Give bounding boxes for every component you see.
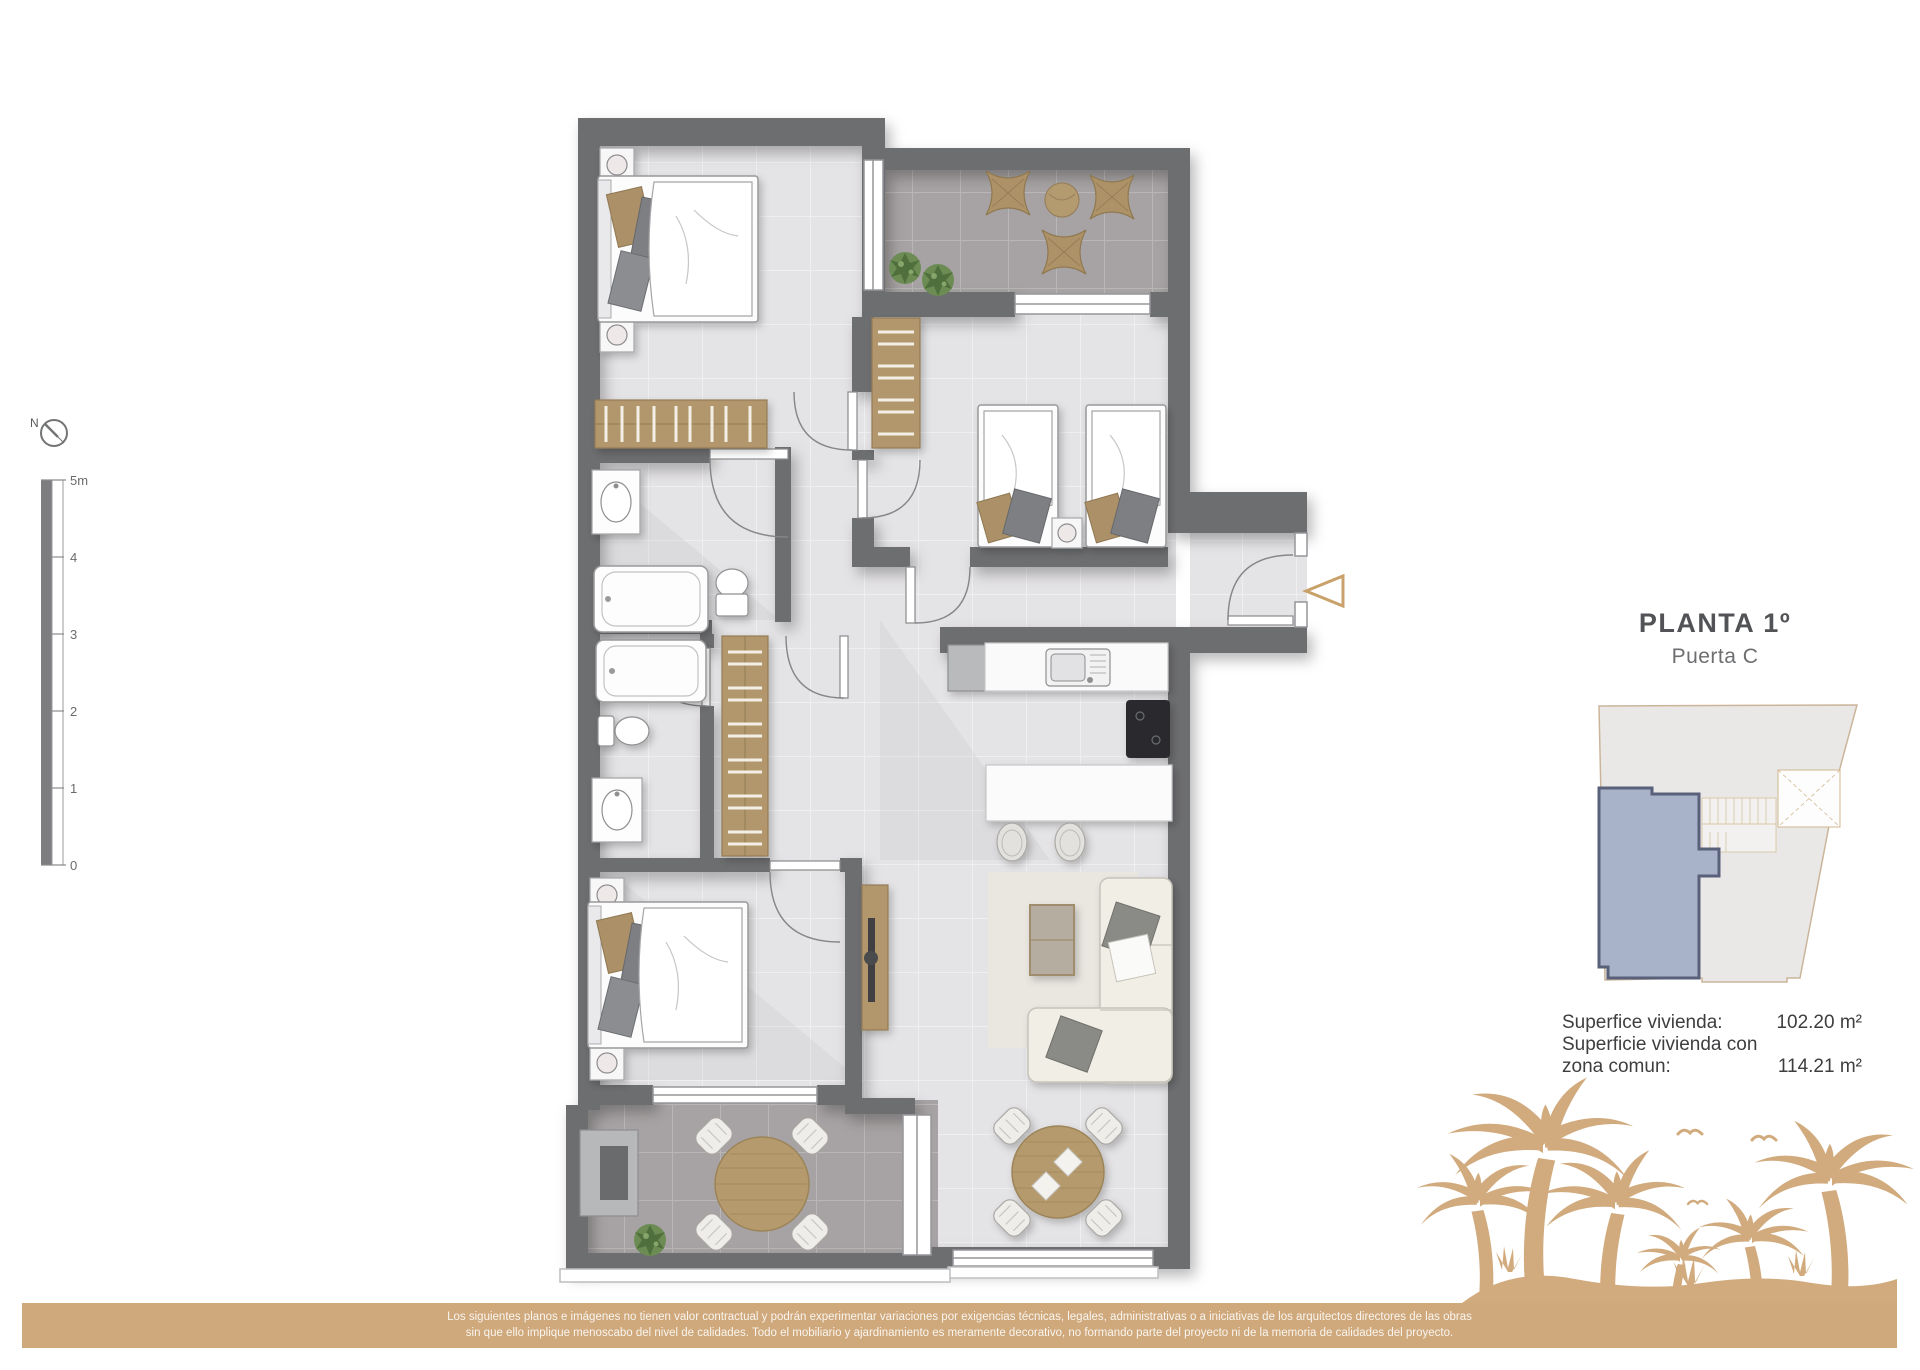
- bedroom-1: [595, 148, 767, 448]
- compass-label: N: [30, 416, 39, 430]
- scale-label-1: 1: [70, 781, 77, 796]
- bedroom2-bed-1: [977, 405, 1058, 547]
- title-block: PLANTA 1º Puerta C: [1555, 608, 1875, 669]
- key-plan-stairs: [1702, 798, 1776, 852]
- compass-icon: N: [30, 416, 67, 446]
- scale-bar: 5m 4 3 2 1 0: [41, 473, 88, 873]
- surface-info: Superfice vivienda: 102.20 m² Superficie…: [1562, 1012, 1862, 1078]
- plan-title: PLANTA 1º: [1555, 608, 1875, 639]
- corridor-wardrobe: [722, 636, 768, 856]
- bird-icon: [1752, 1136, 1776, 1140]
- bedroom3-bed: [588, 902, 748, 1048]
- surface-label-3: zona comun:: [1562, 1056, 1671, 1078]
- disclaimer-line-1: Los siguientes planos e imágenes no tien…: [22, 1309, 1897, 1325]
- scale-label-0: 0: [70, 858, 77, 873]
- bird-icon: [1678, 1130, 1702, 1134]
- scale-label-5m: 5m: [70, 473, 88, 488]
- surface-value-3: 114.21 m²: [1778, 1056, 1862, 1078]
- surface-label-1: Superfice vivienda:: [1562, 1012, 1723, 1034]
- floorplan-page: N 5m 4 3 2 1 0: [0, 0, 1920, 1370]
- bird-icon: [1688, 1201, 1707, 1204]
- bathroom1-toilet: [716, 569, 748, 616]
- scale-label-4: 4: [70, 550, 77, 565]
- coffee-table: [1030, 905, 1074, 975]
- bedroom2-wardrobe: [872, 318, 920, 448]
- surface-value-1: 102.20 m²: [1776, 1012, 1862, 1034]
- disclaimer-line-2: sin que ello implique menoscabo del nive…: [22, 1325, 1897, 1341]
- surface-label-2: Superficie vivienda con: [1562, 1034, 1757, 1056]
- bedroom2-bed-2: [1085, 405, 1166, 547]
- disclaimer-text: Los siguientes planos e imágenes no tien…: [22, 1309, 1897, 1341]
- entrance-arrow-icon: [1306, 576, 1343, 606]
- terrace2-console: [580, 1130, 638, 1216]
- plan-subtitle: Puerta C: [1555, 645, 1875, 669]
- bathroom2-toilet: [598, 716, 649, 746]
- floor-plan-drawing: N 5m 4 3 2 1 0: [0, 0, 1920, 1370]
- kitchen-island: [986, 765, 1172, 821]
- bathroom1-bathtub: [594, 566, 708, 632]
- kitchen-cooktop: [1126, 700, 1170, 758]
- key-plan: [1599, 705, 1857, 982]
- scale-label-2: 2: [70, 704, 77, 719]
- kitchen-sink: [1046, 649, 1110, 686]
- terrace2-plant: [634, 1224, 666, 1256]
- scale-label-3: 3: [70, 627, 77, 642]
- bedroom1-bed: [598, 176, 758, 322]
- disclaimer-bar: Los siguientes planos e imágenes no tien…: [22, 1303, 1897, 1348]
- bedroom1-wardrobe: [595, 400, 767, 448]
- tv-console: [862, 885, 888, 1030]
